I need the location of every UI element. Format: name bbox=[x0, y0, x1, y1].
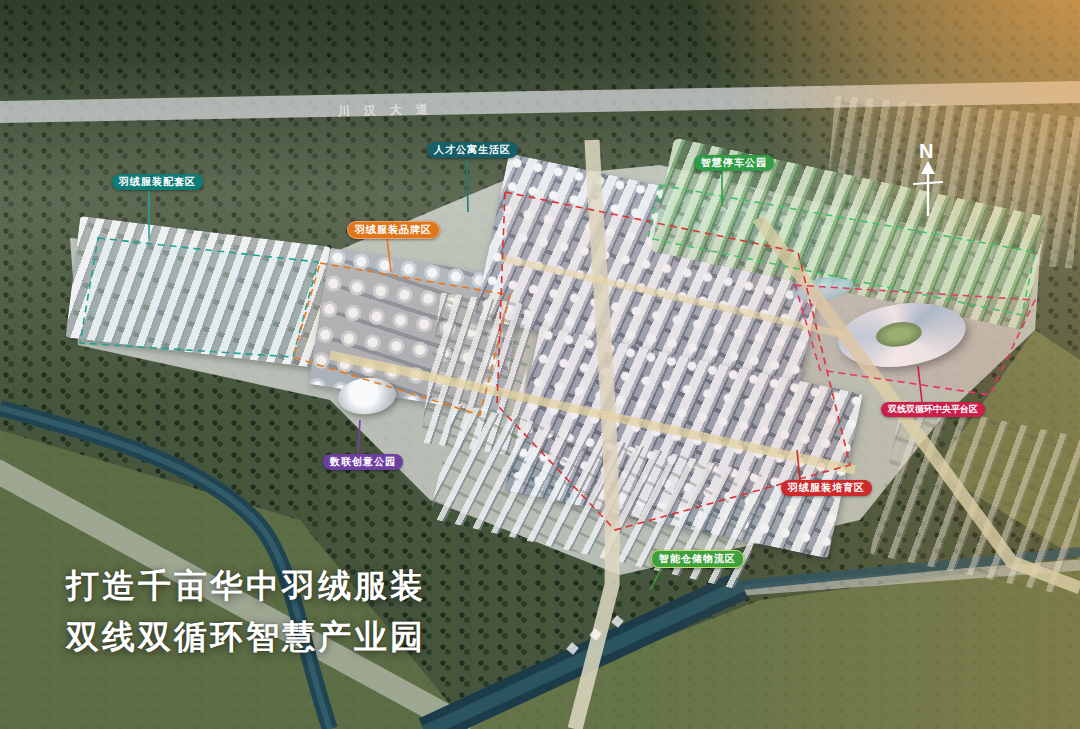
connector-data-creative bbox=[358, 420, 360, 454]
road-name-text: 川汉大道 bbox=[338, 101, 442, 121]
zone-label-brand: 羽绒服装品牌区 bbox=[347, 221, 440, 239]
slogan-line-2: 双线双循环智慧产业园 bbox=[66, 611, 426, 662]
zone-label-smart-parking: 智慧停车公园 bbox=[694, 155, 774, 171]
connector-logistics bbox=[650, 567, 662, 590]
zone-label-incubation: 羽绒服装培育区 bbox=[781, 480, 872, 496]
compass-crossbar bbox=[913, 182, 943, 184]
compass: N bbox=[913, 140, 943, 216]
project-slogan: 打造千亩华中羽绒服装 双线双循环智慧产业园 bbox=[66, 560, 426, 662]
connector-talent bbox=[467, 158, 468, 212]
zone-label-talent-living: 人才公寓生活区 bbox=[427, 142, 518, 158]
zone-label-smart-logistics: 智能仓储物流区 bbox=[651, 550, 744, 568]
slogan-line-1: 打造千亩华中羽绒服装 bbox=[66, 560, 426, 611]
zone-boundary-outfit-support bbox=[80, 238, 318, 357]
compass-arrow-head bbox=[921, 161, 935, 174]
zone-label-central-platform: 双线双循环中央平台区 bbox=[881, 402, 985, 417]
zone-label-data-creative: 数联创意公园 bbox=[323, 454, 403, 470]
zone-label-outfit-support: 羽绒服装配套区 bbox=[112, 174, 203, 190]
zone-boundary-brand bbox=[293, 263, 510, 415]
connector-brand bbox=[387, 238, 391, 272]
compass-n-label: N bbox=[919, 140, 933, 162]
aerial-masterplan-rendering: N 羽绒服装配套区 人才公寓生活区 智慧停车公园 羽绒服装品牌区 数联创意公园 … bbox=[0, 0, 1080, 729]
